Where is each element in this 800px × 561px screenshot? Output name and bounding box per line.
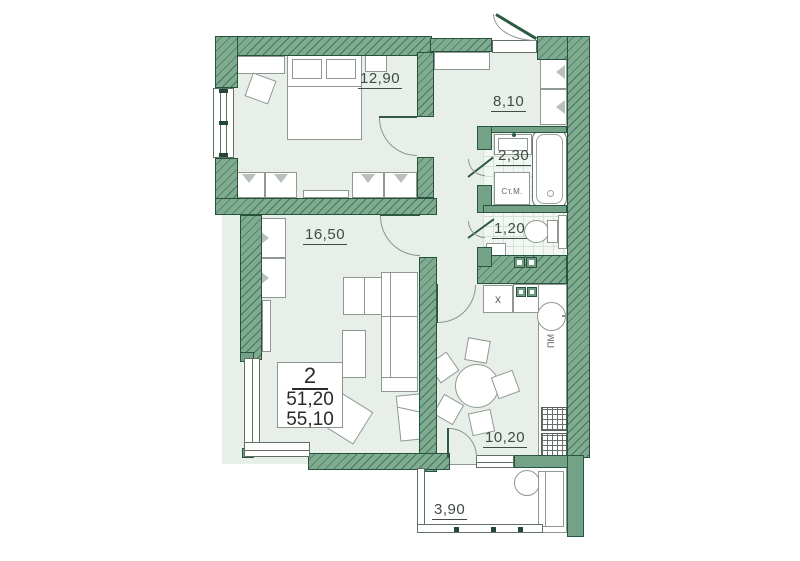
wall-top-bedroom <box>215 36 432 56</box>
stove <box>541 407 567 431</box>
fridge: x <box>483 285 513 313</box>
unit-rooms-count: 2 <box>292 364 328 390</box>
floor-plan: Ст.М. x ПМ <box>0 0 800 561</box>
wall-living-left <box>240 215 262 360</box>
tv <box>262 300 271 352</box>
dishwasher-label: ПМ <box>546 334 556 348</box>
balcony-glazing-bottom <box>417 524 543 533</box>
balcony-area-label: 3,90 <box>432 501 467 520</box>
wall-top-hall <box>430 38 492 52</box>
living-corner-window-v <box>244 358 260 450</box>
washing-machine-label: Ст.М. <box>501 187 522 196</box>
hall-wardrobe <box>540 89 567 125</box>
window-frame-line <box>245 450 309 451</box>
bedroom-low-dresser <box>303 190 349 198</box>
window-frame-line <box>252 359 253 449</box>
balcony-bench <box>538 471 564 527</box>
cushion-line <box>364 278 365 314</box>
wall-bedroom-right-a <box>417 52 434 117</box>
sofa-section <box>343 277 385 315</box>
wall-balcony-right <box>567 455 584 537</box>
toilet-bowl <box>524 220 549 243</box>
wall-right <box>567 36 590 458</box>
hob-inner <box>519 290 523 294</box>
wall-living-right <box>419 257 437 472</box>
vent-inner <box>529 260 534 265</box>
window-tick <box>219 89 228 93</box>
window-frame-line <box>477 462 513 463</box>
vent-duct <box>526 257 537 268</box>
bedroom-dresser <box>237 56 285 74</box>
glazing-tick <box>491 527 496 532</box>
dishwasher-label-box: ПМ <box>541 326 563 356</box>
dining-chair <box>464 337 491 364</box>
wall-left-upper <box>215 36 238 88</box>
washing-machine: Ст.М. <box>494 172 530 205</box>
partition-kitchen-balcony <box>514 455 570 468</box>
door-swing-mark <box>394 174 408 183</box>
entrance-threshold <box>492 40 537 53</box>
kitchen-area-label: 10,20 <box>483 429 527 448</box>
bed <box>287 54 362 140</box>
living-corner-window-h <box>244 442 310 457</box>
glazing-tick <box>518 527 523 532</box>
tap-icon <box>512 133 516 137</box>
window-tick <box>219 121 228 125</box>
door-swing-mark <box>556 65 565 79</box>
hob-burner <box>527 287 537 297</box>
fridge-label: x <box>495 292 501 306</box>
window-tick <box>219 153 228 157</box>
living-wardrobe <box>258 218 286 258</box>
unit-total-area: 55,10 <box>278 410 342 430</box>
balcony-glazing-left <box>417 468 425 528</box>
unit-living-area: 51,20 <box>278 390 342 410</box>
dining-table <box>455 364 499 408</box>
door-swing-mark <box>242 174 256 183</box>
partition-bath-left-c <box>477 247 492 267</box>
drain-icon <box>547 190 554 197</box>
wall-bedroom-right-b <box>417 157 434 198</box>
kitchen-window <box>476 455 514 468</box>
bathroom-area-label: 2,30 <box>496 147 531 166</box>
wc-shelf <box>558 215 567 249</box>
door-swing-mark <box>361 174 375 183</box>
hallway-area-label: 8,10 <box>491 93 526 112</box>
sofa-section <box>381 272 418 392</box>
partition-bathroom-top <box>490 126 567 133</box>
glazing-tick <box>454 527 459 532</box>
balcony-table <box>514 470 540 496</box>
cushion-line <box>390 273 391 377</box>
bedroom-area-label: 12,90 <box>358 70 402 89</box>
coffee-table <box>342 330 366 378</box>
wall-living-bottom <box>308 453 450 470</box>
bedroom-wardrobe <box>265 172 297 198</box>
pillow <box>326 59 356 79</box>
living-area-label: 16,50 <box>303 226 347 245</box>
cushion-line <box>382 377 417 378</box>
hob-burner <box>516 287 526 297</box>
door-swing-mark <box>556 100 565 114</box>
partition-bath-wc <box>483 205 567 213</box>
toilet-tank <box>547 220 558 243</box>
bedroom-wardrobe <box>352 172 384 198</box>
hob-inner <box>530 290 534 294</box>
door-swing-mark <box>274 174 288 183</box>
bathtub <box>532 130 567 208</box>
bedroom-wardrobe <box>384 172 417 198</box>
bedroom-window <box>213 88 234 158</box>
entrance-door-arc <box>493 14 536 41</box>
bench-line <box>545 472 546 526</box>
unit-info-box: 2 51,20 55,10 <box>277 362 343 428</box>
vent-inner <box>517 260 522 265</box>
partition-bath-left-a <box>477 126 492 150</box>
wall-bedroom-living <box>215 198 437 215</box>
cushion-line <box>382 316 417 317</box>
wc-area-label: 1,20 <box>492 220 527 239</box>
blanket-line <box>288 86 361 87</box>
living-wardrobe <box>258 258 286 298</box>
oven <box>541 433 567 457</box>
vent-duct <box>514 257 525 268</box>
pillow <box>292 59 322 79</box>
hall-shelf <box>434 52 490 70</box>
